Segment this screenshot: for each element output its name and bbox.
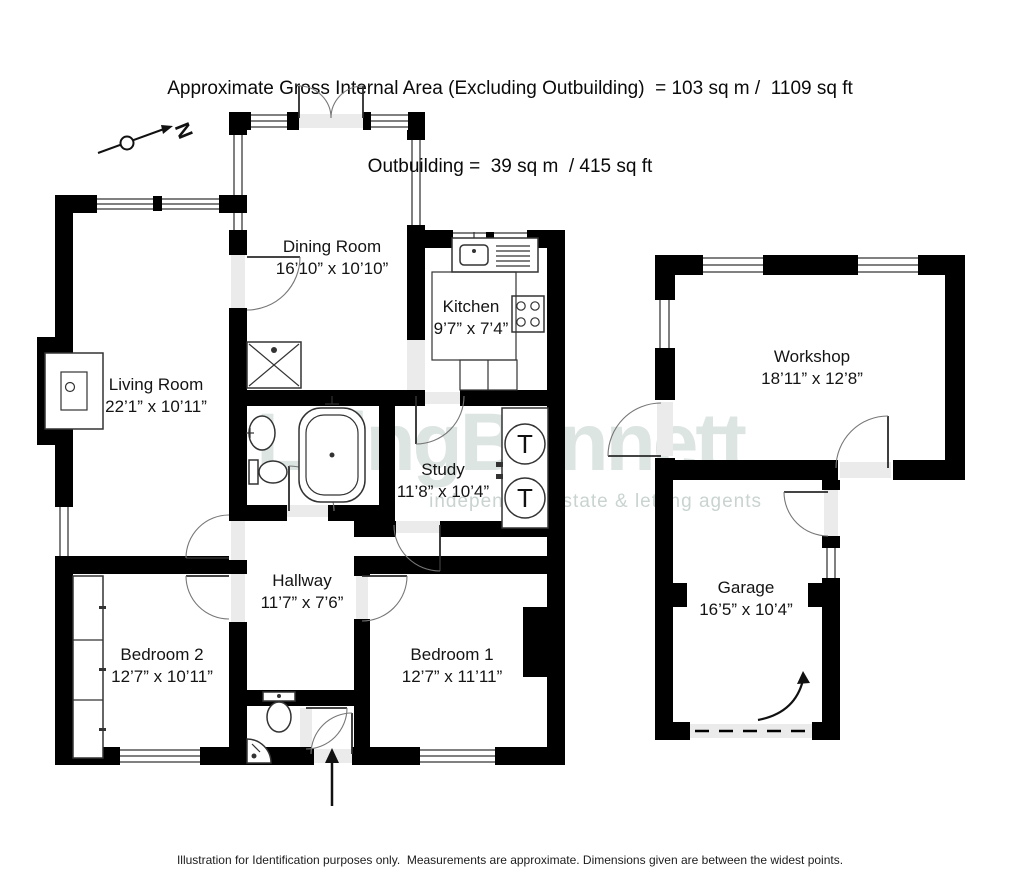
room-name: Kitchen (434, 296, 509, 318)
north-label: N (170, 120, 197, 143)
fireplace-stove (45, 353, 103, 429)
shower-cubicle (247, 342, 301, 388)
tank-label-1: T (517, 429, 533, 459)
room-dims: 18’11” x 12’8” (761, 368, 863, 390)
kitchen-sink (452, 232, 538, 272)
room-label-kitchen: Kitchen 9’7” x 7’4” (434, 296, 509, 340)
room-name: Dining Room (276, 236, 388, 258)
room-name: Bedroom 2 (111, 644, 213, 666)
room-name: Workshop (761, 346, 863, 368)
room-dims: 11’7” x 7’6” (261, 592, 344, 614)
bathtub (299, 396, 365, 502)
bathroom-basin (246, 416, 275, 450)
outbuilding-walls (655, 255, 965, 740)
wc-toilet (263, 692, 295, 732)
room-dims: 9’7” x 7’4” (434, 318, 509, 340)
disclaimer-block: Illustration for Identification purposes… (0, 815, 1020, 884)
floorplan-page: Approximate Gross Internal Area (Excludi… (0, 0, 1020, 884)
room-label-bedroom-1: Bedroom 1 12’7” x 11’11” (402, 644, 502, 688)
room-dims: 12’7” x 11’11” (402, 666, 502, 688)
room-label-hallway: Hallway 11’7” x 7’6” (261, 570, 344, 614)
room-name: Bedroom 1 (402, 644, 502, 666)
room-dims: 22’1” x 10’11” (105, 396, 207, 418)
room-label-bedroom-2: Bedroom 2 12’7” x 10’11” (111, 644, 213, 688)
room-label-workshop: Workshop 18’11” x 12’8” (761, 346, 863, 390)
room-label-study: Study 11’8” x 10’4” (397, 459, 489, 503)
room-dims: 16’10” x 10’10” (276, 258, 388, 280)
kitchen-hob (512, 296, 544, 332)
bedroom2-wardrobes (73, 576, 106, 758)
floor-plan-drawing: N (0, 0, 1020, 884)
room-label-dining-room: Dining Room 16’10” x 10’10” (276, 236, 388, 280)
disclaimer-line-1: Illustration for Identification purposes… (0, 851, 1020, 869)
room-label-living-room: Living Room 22’1” x 10’11” (105, 374, 207, 418)
room-dims: 11’8” x 10’4” (397, 481, 489, 503)
tank-label-2: T (517, 483, 533, 513)
room-name: Hallway (261, 570, 344, 592)
room-name: Living Room (105, 374, 207, 396)
wc-corner-basin (247, 739, 271, 763)
water-tanks-cupboard: T T (496, 408, 548, 528)
bathroom-toilet (249, 460, 287, 484)
room-name: Garage (699, 577, 793, 599)
room-dims: 16’5” x 10’4” (699, 599, 793, 621)
room-label-garage: Garage 16’5” x 10’4” (699, 577, 793, 621)
room-name: Study (397, 459, 489, 481)
north-arrow-icon: N (98, 120, 197, 153)
room-dims: 12’7” x 10’11” (111, 666, 213, 688)
garage-door-arrow-icon (758, 671, 810, 720)
